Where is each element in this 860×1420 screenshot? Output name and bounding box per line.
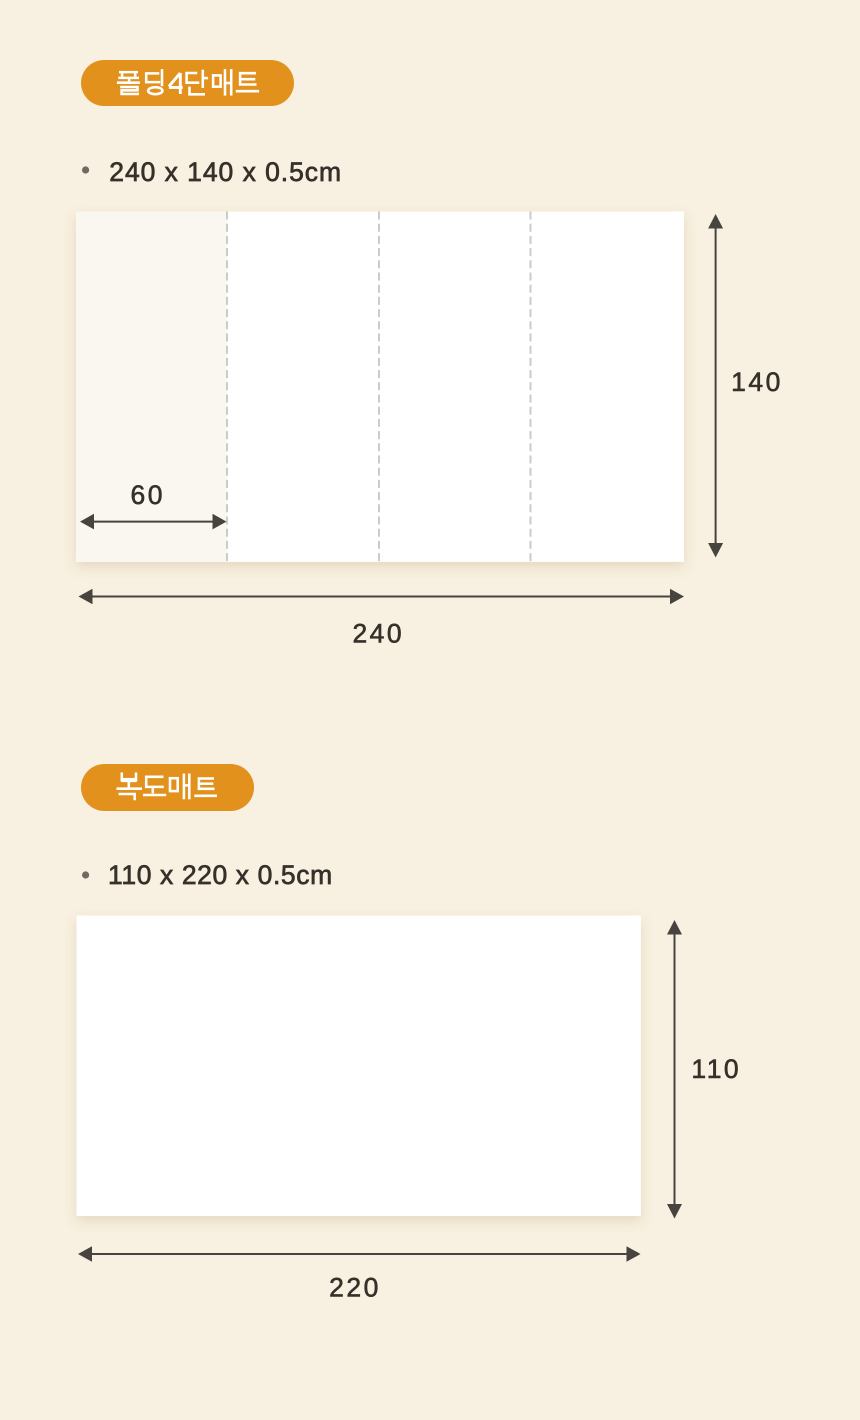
svg-text:240 x 140 x 0.5cm: 240 x 140 x 0.5cm [109,157,342,187]
svg-text:60: 60 [131,480,165,510]
svg-text:140: 140 [731,367,783,397]
svg-text:110: 110 [691,1054,741,1084]
svg-text:240: 240 [352,619,404,649]
svg-text:110 x 220 x 0.5cm: 110 x 220 x 0.5cm [108,860,333,890]
svg-text:220: 220 [329,1273,381,1303]
